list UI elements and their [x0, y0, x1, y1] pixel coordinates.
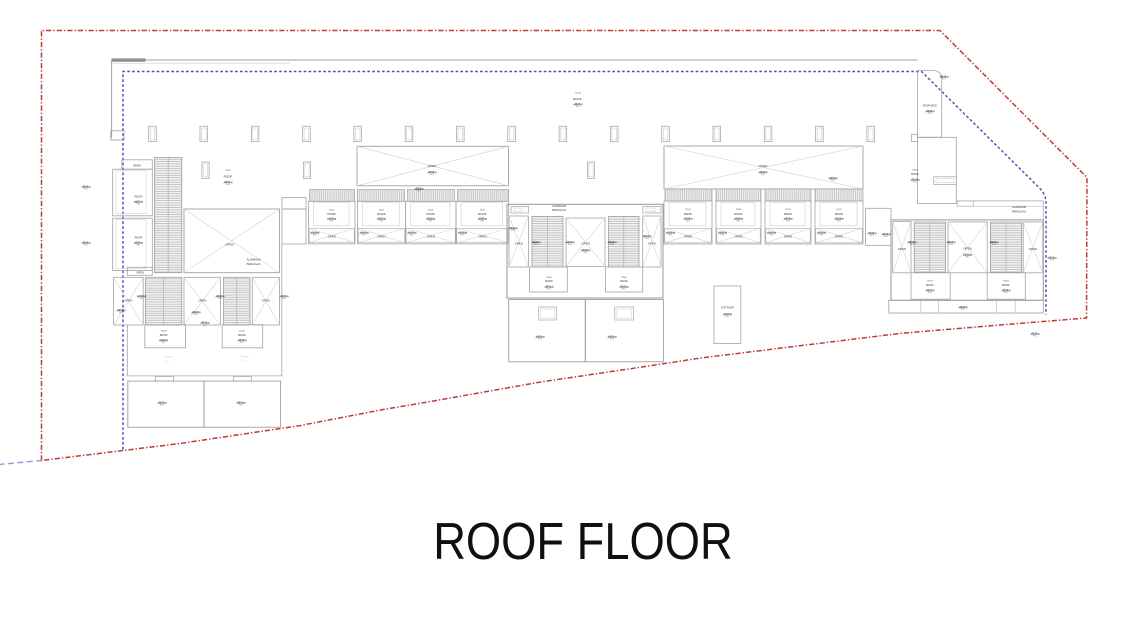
svg-text:F.F.L: F.F.L	[837, 220, 841, 222]
svg-text:terr.m: terr.m	[242, 360, 247, 363]
svg-text:ROOF DECK: ROOF DECK	[923, 105, 938, 108]
svg-text:ROOF: ROOF	[926, 283, 934, 287]
svg-text:F.F.L: F.F.L	[417, 191, 421, 193]
svg-text:F.F.L: F.F.L	[410, 234, 414, 236]
svg-text:F.F.L: F.F.L	[576, 106, 580, 108]
svg-text:PERGOLAS: PERGOLAS	[1012, 209, 1027, 213]
svg-text:TR-06: TR-06	[621, 277, 627, 279]
svg-text:F.F.L: F.F.L	[119, 312, 123, 314]
svg-text:F.F.L: F.F.L	[330, 221, 334, 223]
svg-text:F.F.L: F.F.L	[884, 236, 888, 238]
svg-text:F.F.L: F.F.L	[380, 221, 384, 223]
svg-text:OPEN: OPEN	[684, 235, 692, 239]
svg-text:F.F.L: F.F.L	[622, 289, 626, 291]
svg-text:F.F.L: F.F.L	[218, 298, 222, 300]
svg-text:F.F.L: F.F.L	[820, 234, 824, 236]
svg-text:F.F.L: F.F.L	[547, 289, 551, 291]
svg-text:F.F.L: F.F.L	[480, 221, 484, 223]
svg-text:terr.m: terr.m	[165, 360, 170, 363]
svg-text:F.F.L: F.F.L	[669, 234, 673, 236]
svg-text:F.F.L: F.F.L	[137, 204, 141, 206]
svg-text:F.F.L: F.F.L	[942, 79, 946, 81]
svg-text:F.F.L: F.F.L	[160, 405, 164, 407]
svg-text:OPEN: OPEN	[427, 234, 435, 238]
svg-text:TR-04: TR-04	[239, 331, 245, 333]
svg-text:F.F.L: F.F.L	[913, 182, 917, 184]
svg-text:F.F.L: F.F.L	[870, 235, 874, 237]
svg-text:ROOF: ROOF	[545, 279, 553, 283]
svg-text:F.F.L: F.F.L	[961, 309, 965, 311]
svg-text:OPEN: OPEN	[262, 299, 270, 303]
svg-text:TR-07: TR-07	[927, 280, 933, 282]
svg-text:OPEN: OPEN	[198, 299, 206, 303]
svg-text:F.F.L: F.F.L	[610, 244, 614, 246]
svg-text:F.F.L: F.F.L	[240, 342, 244, 344]
svg-text:F.F.L: F.F.L	[239, 405, 243, 407]
svg-text:F.F.L: F.F.L	[1004, 292, 1008, 294]
svg-text:ALUMINUM: ALUMINUM	[247, 258, 261, 262]
svg-text:F.F.L: F.F.L	[534, 244, 538, 246]
svg-text:OPEN: OPEN	[648, 242, 656, 246]
svg-text:F.F.L: F.F.L	[226, 184, 230, 186]
svg-text:OPEN: OPEN	[581, 242, 590, 246]
svg-text:F.F.L: F.F.L	[928, 113, 932, 115]
svg-text:F.F.L: F.F.L	[430, 174, 434, 176]
svg-text:ROOF: ROOF	[684, 212, 693, 216]
svg-text:TR-02: TR-02	[225, 170, 231, 172]
svg-text:OPEN: OPEN	[515, 242, 523, 246]
svg-text:ROOF: ROOF	[620, 279, 628, 283]
svg-text:F.F.L: F.F.L	[949, 244, 953, 246]
svg-text:F.F.L: F.F.L	[584, 252, 588, 254]
svg-text:OPEN: OPEN	[136, 270, 144, 274]
svg-text:F.F.L: F.F.L	[137, 245, 141, 247]
svg-text:F.F.L: F.F.L	[726, 316, 730, 318]
svg-text:ROOF: ROOF	[573, 97, 582, 101]
svg-text:ROOF: ROOF	[135, 195, 143, 199]
svg-text:F.F.L: F.F.L	[282, 298, 286, 300]
svg-text:TR-03: TR-03	[161, 331, 167, 333]
svg-text:ROOF FLOOR: ROOF FLOOR	[433, 514, 733, 571]
svg-text:ROOF: ROOF	[135, 236, 143, 240]
svg-text:F.F.L: F.F.L	[140, 298, 144, 300]
svg-text:F.F.L: F.F.L	[84, 245, 88, 247]
svg-text:F.F.L: F.F.L	[1050, 260, 1054, 262]
svg-text:ROOF: ROOF	[478, 212, 487, 216]
svg-text:TR-05: TR-05	[546, 277, 552, 279]
svg-text:OPEN: OPEN	[835, 235, 843, 239]
svg-text:F.F.L: F.F.L	[511, 230, 515, 232]
svg-text:F.F.L: F.F.L	[429, 221, 433, 223]
svg-text:ALUMINUM: ALUMINUM	[552, 204, 566, 208]
svg-text:OPEN: OPEN	[734, 235, 742, 239]
svg-text:PERGOLAS: PERGOLAS	[552, 208, 567, 212]
svg-text:F.F.L: F.F.L	[610, 339, 614, 341]
svg-text:ROOF: ROOF	[160, 333, 168, 337]
svg-text:TR-09: TR-09	[912, 170, 918, 172]
svg-text:OPEN: OPEN	[133, 164, 141, 168]
svg-text:F.F.L: F.F.L	[313, 234, 317, 236]
svg-text:F.F.L: F.F.L	[538, 339, 542, 341]
svg-text:OPEN: OPEN	[124, 299, 132, 303]
svg-text:TOP ROOF: TOP ROOF	[721, 307, 734, 310]
svg-text:ROOF: ROOF	[1002, 283, 1010, 287]
svg-text:ROOF: ROOF	[835, 212, 844, 216]
svg-text:OPEN: OPEN	[225, 243, 234, 247]
svg-text:OPEN: OPEN	[1029, 247, 1037, 251]
svg-text:OPEN: OPEN	[377, 234, 385, 238]
svg-text:PERGOLAS: PERGOLAS	[246, 262, 261, 266]
svg-text:OPEN: OPEN	[428, 164, 437, 168]
svg-text:F.F.L: F.F.L	[461, 234, 465, 236]
svg-text:ROOF: ROOF	[427, 212, 436, 216]
svg-text:F.F.L: F.F.L	[910, 244, 914, 246]
svg-text:ALUMINUM: ALUMINUM	[1012, 205, 1026, 209]
svg-text:ROOF: ROOF	[784, 212, 793, 216]
svg-text:F.F.L: F.F.L	[786, 220, 790, 222]
svg-text:F.F.L: F.F.L	[737, 220, 741, 222]
svg-text:Terrace: Terrace	[164, 356, 173, 359]
svg-text:F.F.L: F.F.L	[84, 189, 88, 191]
svg-text:F.F.L: F.F.L	[645, 238, 649, 240]
svg-text:OPEN: OPEN	[784, 235, 792, 239]
svg-text:F.F.L: F.F.L	[831, 180, 835, 182]
svg-text:F.F.L: F.F.L	[686, 220, 690, 222]
svg-text:OPEN: OPEN	[328, 234, 336, 238]
svg-text:ROOF: ROOF	[734, 212, 743, 216]
svg-text:F.F.L: F.F.L	[966, 257, 970, 259]
svg-text:OPEN: OPEN	[898, 247, 906, 251]
svg-text:F.F.L: F.F.L	[362, 234, 366, 236]
svg-text:TR-10: TR-10	[575, 93, 581, 95]
svg-text:OPEN: OPEN	[478, 234, 486, 238]
svg-text:F.F.L: F.F.L	[928, 292, 932, 294]
svg-text:ROOF: ROOF	[238, 333, 246, 337]
svg-text:F.F.L: F.F.L	[992, 244, 996, 246]
svg-text:F.F.L: F.F.L	[162, 342, 166, 344]
svg-text:OPEN: OPEN	[963, 246, 972, 250]
svg-text:F.F.L: F.F.L	[1033, 336, 1037, 338]
svg-text:F.F.L: F.F.L	[770, 234, 774, 236]
svg-text:F.F.L: F.F.L	[568, 244, 572, 246]
svg-text:ROOF: ROOF	[377, 212, 386, 216]
svg-text:ROOF: ROOF	[328, 212, 337, 216]
svg-text:ROOF: ROOF	[224, 175, 233, 179]
svg-text:F.F.L: F.F.L	[203, 325, 207, 327]
svg-text:TR-08: TR-08	[1003, 280, 1009, 282]
svg-text:Terrace: Terrace	[241, 356, 250, 359]
svg-text:OPEN: OPEN	[759, 164, 768, 168]
svg-text:F.F.L: F.F.L	[194, 314, 198, 316]
svg-text:F.F.L: F.F.L	[721, 234, 725, 236]
svg-text:ROOF: ROOF	[911, 172, 919, 176]
svg-text:F.F.L: F.F.L	[761, 174, 765, 176]
